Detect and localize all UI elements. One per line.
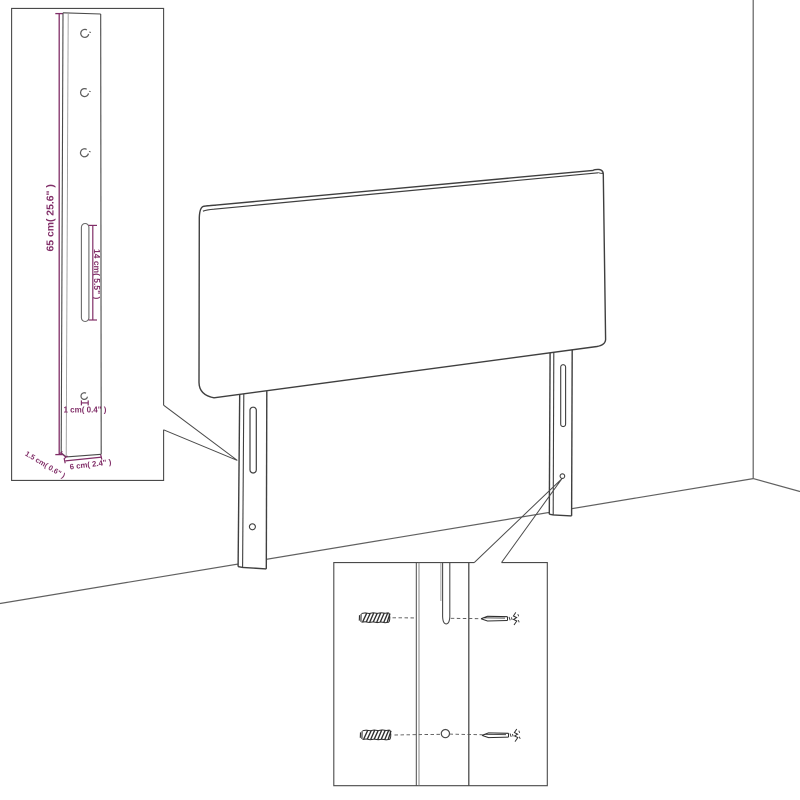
svg-text:65 cm( 25.6" ): 65 cm( 25.6" ): [46, 184, 57, 251]
svg-text:1 cm( 0.4" ): 1 cm( 0.4" ): [64, 406, 107, 415]
svg-text:14 cm( 5.5" ): 14 cm( 5.5" ): [92, 249, 102, 300]
